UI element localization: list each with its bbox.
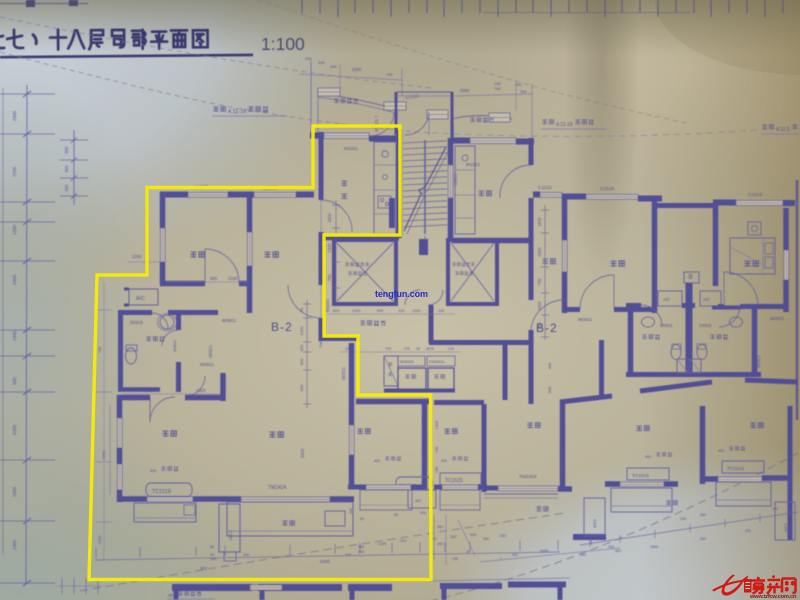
svg-text:400: 400 — [299, 358, 304, 365]
svg-text:TM2424: TM2424 — [268, 485, 287, 491]
svg-text:C1215: C1215 — [538, 185, 552, 190]
svg-text:1000: 1000 — [537, 301, 542, 311]
svg-text:www.tzfcw.com.cn: www.tzfcw.com.cn — [749, 594, 797, 600]
svg-text:80: 80 — [360, 517, 364, 521]
svg-text:1350: 1350 — [378, 542, 386, 546]
svg-text:7200: 7200 — [12, 166, 17, 177]
svg-text:1900: 1900 — [12, 330, 17, 341]
svg-text:A/C2: A/C2 — [592, 518, 597, 528]
svg-text:300: 300 — [700, 537, 706, 541]
svg-text:380: 380 — [358, 545, 364, 549]
svg-text:100: 100 — [243, 553, 249, 557]
svg-text:35: 35 — [416, 347, 420, 351]
svg-text:300: 300 — [483, 537, 489, 541]
svg-text:400: 400 — [547, 362, 552, 369]
svg-text:330: 330 — [680, 517, 686, 521]
svg-text:5300: 5300 — [320, 559, 330, 564]
svg-text:900: 900 — [210, 276, 218, 281]
svg-text:850: 850 — [64, 146, 69, 154]
svg-text:M0921: M0921 — [578, 317, 592, 322]
svg-text:2200: 2200 — [146, 388, 156, 393]
svg-text:2000: 2000 — [352, 67, 362, 72]
svg-text:1000: 1000 — [12, 486, 17, 497]
svg-text:M1021: M1021 — [466, 162, 480, 167]
svg-text:C1515: C1515 — [600, 186, 614, 192]
svg-text:M0542L: M0542L — [400, 359, 415, 364]
svg-text:B-2: B-2 — [271, 320, 293, 334]
svg-text:4.11-1: 4.11-1 — [776, 127, 790, 133]
svg-text:M0921: M0921 — [208, 345, 213, 358]
svg-text:M1021: M1021 — [344, 146, 358, 151]
svg-text:400: 400 — [374, 459, 380, 463]
svg-text:C0915: C0915 — [699, 323, 712, 328]
svg-text:4300: 4300 — [12, 424, 17, 435]
svg-text:M1021 7: M1021 7 — [374, 115, 379, 132]
svg-text:130: 130 — [438, 309, 444, 313]
svg-text:300: 300 — [520, 89, 527, 94]
svg-text:A/C: A/C — [415, 498, 422, 503]
svg-text:1500: 1500 — [12, 224, 17, 235]
svg-text:C1515: C1515 — [748, 192, 762, 198]
svg-text:TM1021: TM1021 — [318, 333, 323, 348]
svg-text:130: 130 — [398, 309, 404, 313]
svg-text:3#: 3# — [168, 593, 174, 598]
svg-text:TM2424: TM2424 — [519, 474, 537, 480]
svg-text:400: 400 — [645, 455, 651, 459]
svg-text:330: 330 — [450, 535, 456, 539]
svg-text:M0921: M0921 — [770, 316, 784, 321]
svg-text:2000: 2000 — [460, 88, 470, 93]
svg-text:330: 330 — [745, 529, 751, 533]
svg-text:400: 400 — [330, 64, 337, 69]
svg-text:2300: 2300 — [537, 247, 542, 257]
svg-text:300: 300 — [437, 525, 443, 529]
svg-text:1800: 1800 — [650, 545, 658, 549]
svg-text:1:100: 1:100 — [261, 34, 305, 54]
svg-text:TC2119: TC2119 — [152, 489, 171, 495]
svg-text:700: 700 — [386, 72, 393, 77]
svg-text:200: 200 — [772, 507, 778, 511]
svg-text:M0921: M0921 — [341, 367, 346, 380]
svg-text:FM1021: FM1021 — [450, 125, 455, 140]
svg-text:1000: 1000 — [299, 326, 304, 336]
svg-text:160: 160 — [437, 542, 443, 546]
svg-text:900: 900 — [299, 384, 304, 391]
svg-text:2200: 2200 — [101, 450, 106, 460]
svg-text:2675: 2675 — [426, 347, 434, 351]
svg-text:1000: 1000 — [352, 309, 360, 313]
svg-text:90: 90 — [394, 513, 398, 517]
svg-text:150: 150 — [435, 467, 439, 473]
svg-text:200: 200 — [400, 539, 406, 543]
svg-text:900: 900 — [64, 165, 69, 173]
svg-text:C0915: C0915 — [660, 323, 673, 328]
svg-text:300: 300 — [512, 553, 518, 557]
svg-text:330: 330 — [420, 511, 426, 515]
svg-text:600: 600 — [377, 309, 383, 313]
svg-text:400: 400 — [441, 459, 447, 463]
svg-text:075: 075 — [404, 347, 410, 351]
svg-text:700: 700 — [494, 86, 501, 91]
svg-text:TC1515: TC1515 — [632, 473, 649, 479]
svg-text:C0915: C0915 — [453, 173, 458, 186]
svg-text:1: 1 — [500, 557, 502, 561]
svg-text:100: 100 — [318, 60, 325, 65]
svg-text:1200: 1200 — [132, 254, 142, 259]
svg-text:330: 330 — [500, 534, 506, 538]
svg-text:2900: 2900 — [12, 274, 17, 285]
svg-text:300: 300 — [700, 513, 706, 517]
svg-text:2900: 2900 — [12, 110, 17, 121]
svg-text:FM0901L: FM0901L — [429, 360, 445, 364]
svg-text:900: 900 — [547, 386, 552, 393]
svg-text:tengfun.com: tengfun.com — [375, 289, 428, 299]
svg-text:600: 600 — [333, 309, 339, 313]
svg-text:2300: 2300 — [327, 243, 332, 253]
svg-text:1500: 1500 — [537, 217, 542, 227]
svg-text:TC1515: TC1515 — [445, 478, 463, 484]
svg-text:A/C2: A/C2 — [228, 530, 233, 540]
svg-text:A/C: A/C — [703, 297, 710, 302]
svg-text:500: 500 — [12, 377, 17, 385]
svg-text:D0915: D0915 — [130, 320, 143, 325]
svg-text:300: 300 — [615, 549, 621, 553]
svg-text:700: 700 — [385, 347, 391, 351]
svg-text:400: 400 — [150, 469, 156, 473]
svg-text:1300: 1300 — [412, 309, 420, 313]
svg-text:1300: 1300 — [196, 388, 206, 393]
svg-text:300: 300 — [200, 566, 208, 571]
svg-text:750: 750 — [537, 278, 542, 286]
svg-text:M1021: M1021 — [325, 298, 330, 312]
svg-text:M0821: M0821 — [172, 339, 177, 352]
svg-text:750: 750 — [327, 274, 332, 282]
svg-text:A/C: A/C — [663, 297, 670, 302]
svg-text:700: 700 — [435, 447, 439, 453]
svg-text:300: 300 — [580, 553, 586, 557]
svg-text:075: 075 — [448, 347, 454, 351]
svg-text:1500: 1500 — [327, 213, 332, 223]
svg-text:A/C2: A/C2 — [783, 522, 788, 532]
svg-text:730: 730 — [452, 557, 458, 561]
svg-text:M0921: M0921 — [200, 362, 214, 367]
svg-text:100: 100 — [494, 81, 501, 86]
svg-text:300: 300 — [358, 550, 364, 554]
svg-text:20: 20 — [466, 550, 470, 554]
svg-text:350: 350 — [537, 322, 542, 330]
svg-text:350: 350 — [64, 184, 69, 192]
svg-text:5300: 5300 — [540, 549, 548, 553]
svg-text:1300: 1300 — [435, 421, 439, 429]
svg-text:A/C: A/C — [136, 296, 145, 302]
svg-text:50: 50 — [299, 307, 304, 312]
svg-text:4.11-19: 4.11-19 — [228, 109, 246, 115]
svg-text:1000: 1000 — [98, 536, 102, 544]
svg-text:M0921: M0921 — [222, 318, 236, 323]
svg-text:300: 300 — [470, 533, 476, 537]
svg-text:TC1515: TC1515 — [727, 466, 744, 472]
svg-text:330: 330 — [345, 553, 351, 557]
svg-text:160: 160 — [589, 539, 593, 545]
svg-text:160: 160 — [349, 508, 353, 514]
svg-text:4.11-19: 4.11-19 — [556, 122, 573, 128]
svg-text:20: 20 — [210, 553, 214, 557]
svg-text:350: 350 — [299, 344, 304, 351]
svg-text:200: 200 — [305, 56, 312, 61]
svg-text:M0921: M0921 — [756, 355, 761, 368]
svg-text:3400: 3400 — [300, 448, 305, 458]
svg-text:400: 400 — [718, 449, 724, 453]
svg-text:2100: 2100 — [228, 276, 238, 281]
svg-text:80: 80 — [210, 545, 214, 549]
svg-text:1900: 1900 — [12, 539, 17, 550]
svg-text:700: 700 — [98, 347, 102, 353]
